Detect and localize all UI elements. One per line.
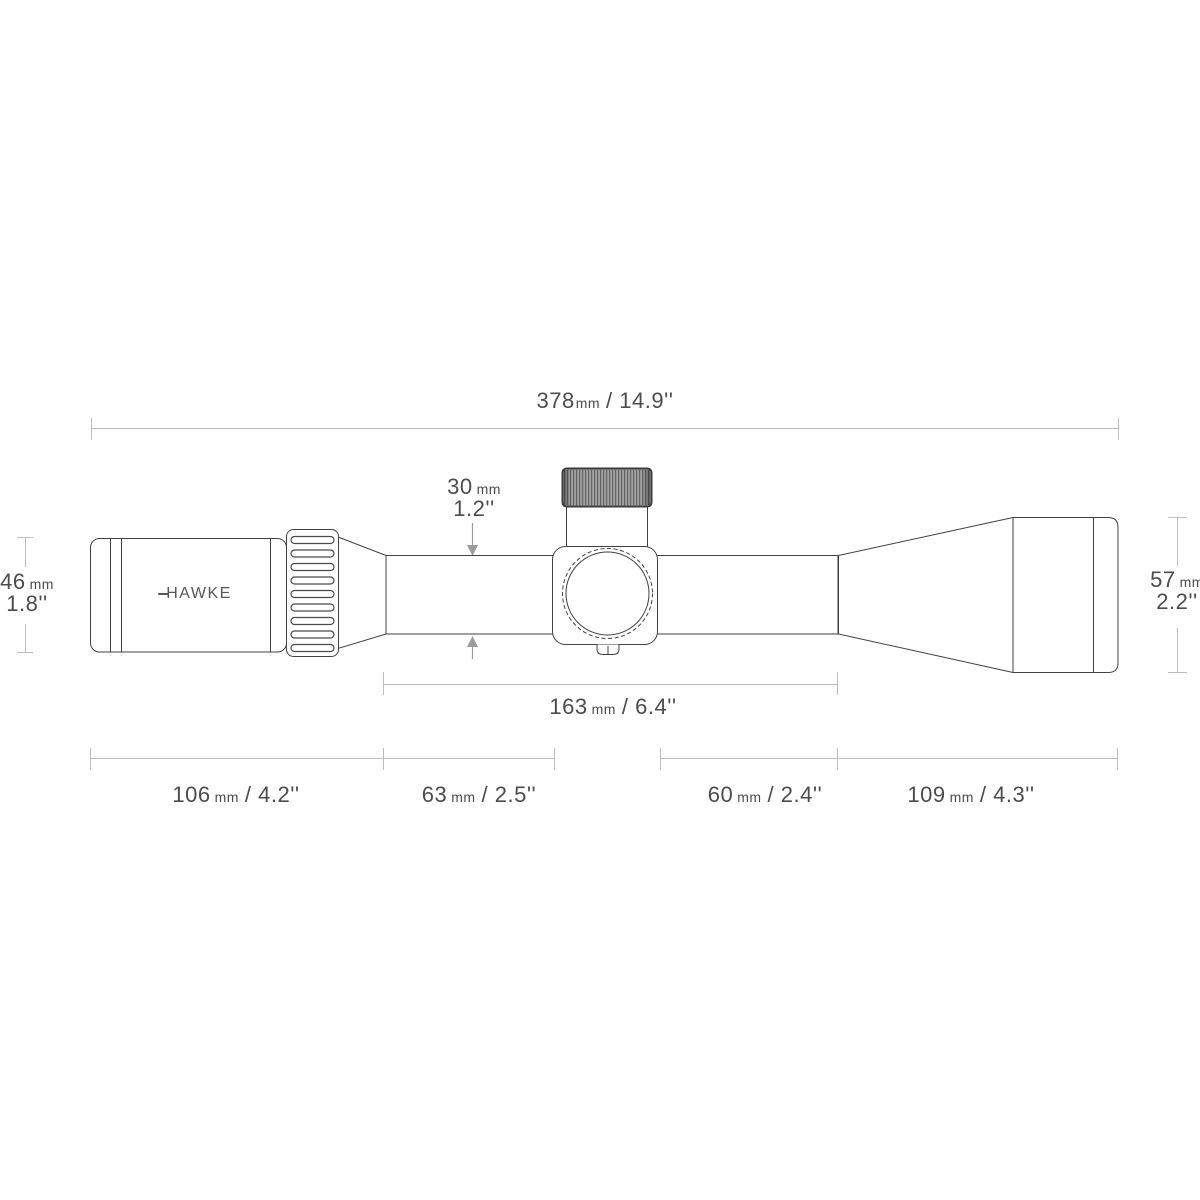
overall-length-inches: / 14.9'' xyxy=(606,388,673,413)
objective-length-inches: / 4.3'' xyxy=(980,782,1035,807)
rear-tube-length-inches: / 2.5'' xyxy=(482,782,537,807)
eyepiece-taper xyxy=(338,537,386,649)
mid-section-inches: / 6.4'' xyxy=(622,694,677,719)
mid-section-unit: mm xyxy=(592,701,616,717)
mid-section-mm: 163 xyxy=(549,694,587,719)
tube-diameter-unit: mm xyxy=(477,481,501,497)
front-tube-length-unit: mm xyxy=(737,789,761,805)
front-tube-length-label: 60mm/ 2.4'' xyxy=(708,785,823,807)
rear-tube-length-unit: mm xyxy=(451,789,475,805)
riflescope-dimension-diagram: 378mm/ 14.9'' 30mm 1.2'' 46mm 1.8'' 57mm… xyxy=(0,0,1200,1200)
tube-arrow-down-head xyxy=(467,545,478,556)
front-tube-length-mm: 60 xyxy=(708,782,733,807)
rear-tube-length-mm: 63 xyxy=(422,782,447,807)
objective-diameter-label: 57mm 2.2'' xyxy=(1150,570,1200,612)
tube-arrow-up-head xyxy=(467,636,478,647)
turret-stem xyxy=(567,504,648,552)
overall-length-label: 378mm/ 14.9'' xyxy=(537,391,674,413)
objective-diameter-inches: 2.2'' xyxy=(1156,589,1197,614)
zoom-ring-knurling xyxy=(290,534,335,653)
front-tube-length-inches: / 2.4'' xyxy=(768,782,823,807)
side-focus-dial xyxy=(566,552,649,635)
objective-bell-taper xyxy=(839,518,1014,673)
eyepiece-diameter-label: 46mm 1.8'' xyxy=(0,572,54,614)
brand-logo-text: HAWKE xyxy=(166,586,232,602)
overall-length-mm: 378 xyxy=(537,388,575,413)
eyepiece-length-unit: mm xyxy=(215,789,239,805)
tube-diameter-label: 30mm 1.2'' xyxy=(447,477,501,519)
eyepiece-length-mm: 106 xyxy=(172,782,210,807)
objective-length-unit: mm xyxy=(950,789,974,805)
brand-logo: HAWKE xyxy=(158,586,232,602)
overall-length-unit: mm xyxy=(576,395,600,411)
scope-body xyxy=(91,469,1119,673)
eyepiece-length-label: 106mm/ 4.2'' xyxy=(172,785,299,807)
eyepiece-diameter-inches: 1.8'' xyxy=(6,591,47,616)
mid-section-length-label: 163mm/ 6.4'' xyxy=(549,697,676,719)
objective-body xyxy=(1013,518,1118,673)
objective-diameter-unit: mm xyxy=(1180,574,1200,590)
objective-length-label: 109mm/ 4.3'' xyxy=(907,785,1034,807)
tube-diameter-inches: 1.2'' xyxy=(453,496,494,521)
eyepiece-diameter-unit: mm xyxy=(30,576,54,592)
rear-tube-length-label: 63mm/ 2.5'' xyxy=(422,785,537,807)
turret-cap-shading xyxy=(564,470,650,505)
eyepiece-length-inches: / 4.2'' xyxy=(245,782,300,807)
objective-length-mm: 109 xyxy=(907,782,945,807)
